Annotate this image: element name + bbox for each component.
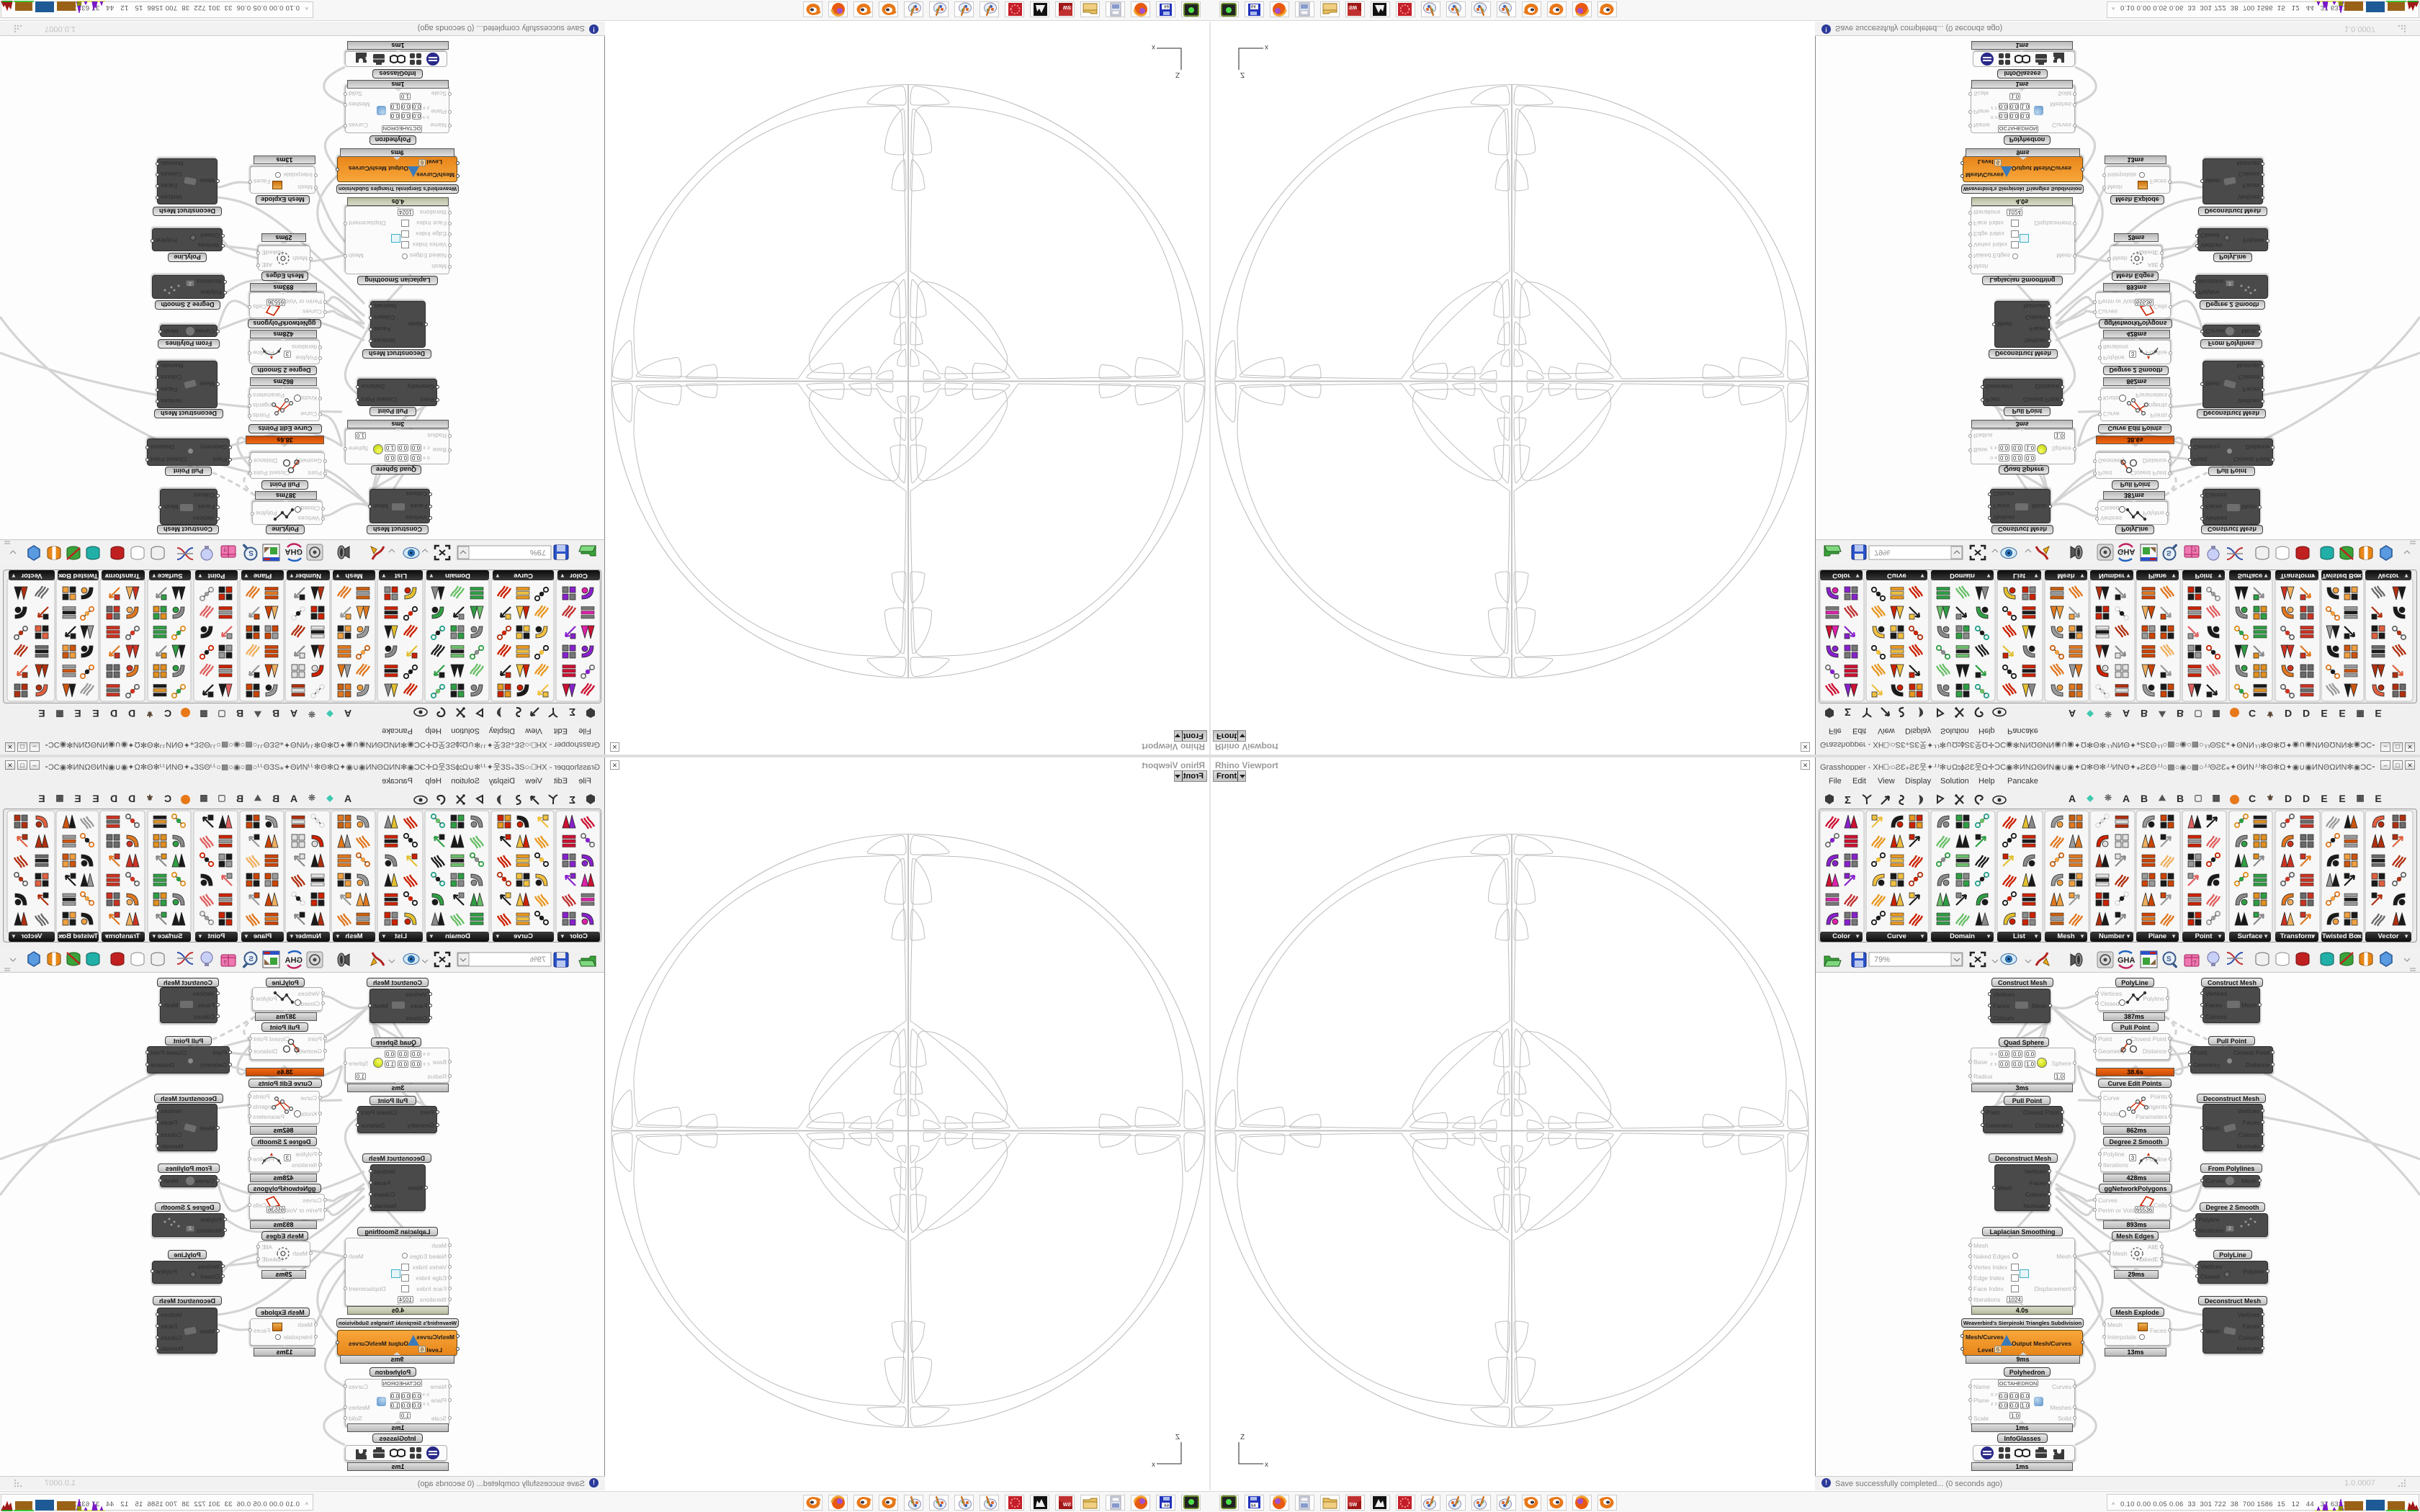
svg-text:S: S bbox=[2166, 955, 2172, 963]
svg-text:79%: 79% bbox=[1874, 548, 1890, 557]
svg-text:64: 64 bbox=[1251, 4, 1256, 8]
svg-text:x: x bbox=[1265, 1461, 1268, 1469]
svg-text:64: 64 bbox=[1164, 1504, 1169, 1508]
svg-text:?: ? bbox=[223, 546, 227, 552]
svg-text:SW: SW bbox=[1349, 1503, 1358, 1508]
svg-text:SW: SW bbox=[1349, 4, 1358, 9]
svg-text:x: x bbox=[1152, 1461, 1155, 1469]
svg-text:79%: 79% bbox=[530, 955, 546, 964]
svg-text:?: ? bbox=[2193, 960, 2197, 966]
svg-text:Z: Z bbox=[1175, 1434, 1180, 1441]
svg-text:x: x bbox=[1152, 43, 1155, 51]
svg-text:SW: SW bbox=[1062, 4, 1071, 9]
svg-text:79%: 79% bbox=[530, 548, 546, 557]
svg-text:S: S bbox=[2166, 549, 2172, 557]
svg-text:SW: SW bbox=[1062, 1503, 1071, 1508]
svg-text:GHA: GHA bbox=[285, 956, 303, 965]
svg-text:S: S bbox=[248, 549, 254, 557]
svg-text:Z: Z bbox=[1175, 71, 1180, 78]
svg-text:64: 64 bbox=[1164, 4, 1169, 8]
svg-text:GHA: GHA bbox=[2117, 547, 2136, 556]
svg-text:S: S bbox=[248, 955, 254, 963]
svg-text:64: 64 bbox=[1251, 1504, 1256, 1508]
svg-text:?: ? bbox=[223, 960, 227, 966]
svg-text:GHA: GHA bbox=[2117, 956, 2136, 965]
svg-text:x: x bbox=[1265, 43, 1268, 51]
svg-text:GHA: GHA bbox=[285, 547, 303, 556]
svg-text:Z: Z bbox=[1240, 1434, 1245, 1441]
svg-text:Z: Z bbox=[1240, 71, 1245, 78]
svg-text:?: ? bbox=[2193, 546, 2197, 552]
svg-text:79%: 79% bbox=[1874, 955, 1890, 964]
